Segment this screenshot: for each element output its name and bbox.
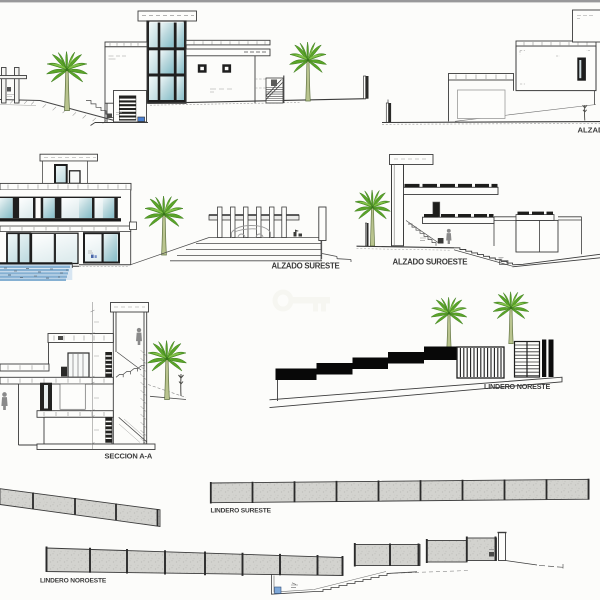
svg-text:ALZADO NORESTE: ALZADO NORESTE (578, 126, 600, 135)
svg-text:LINDERO SURESTE: LINDERO SURESTE (211, 508, 272, 515)
svg-text:ALZADO SUROESTE: ALZADO SUROESTE (393, 258, 468, 267)
svg-text:LINDERO NORESTE: LINDERO NORESTE (484, 382, 550, 391)
svg-text:LINDERO NOROESTE: LINDERO NOROESTE (40, 578, 107, 585)
svg-text:ALZADO SURESTE: ALZADO SURESTE (272, 262, 340, 271)
svg-text:SECCION A-A: SECCION A-A (105, 452, 153, 461)
